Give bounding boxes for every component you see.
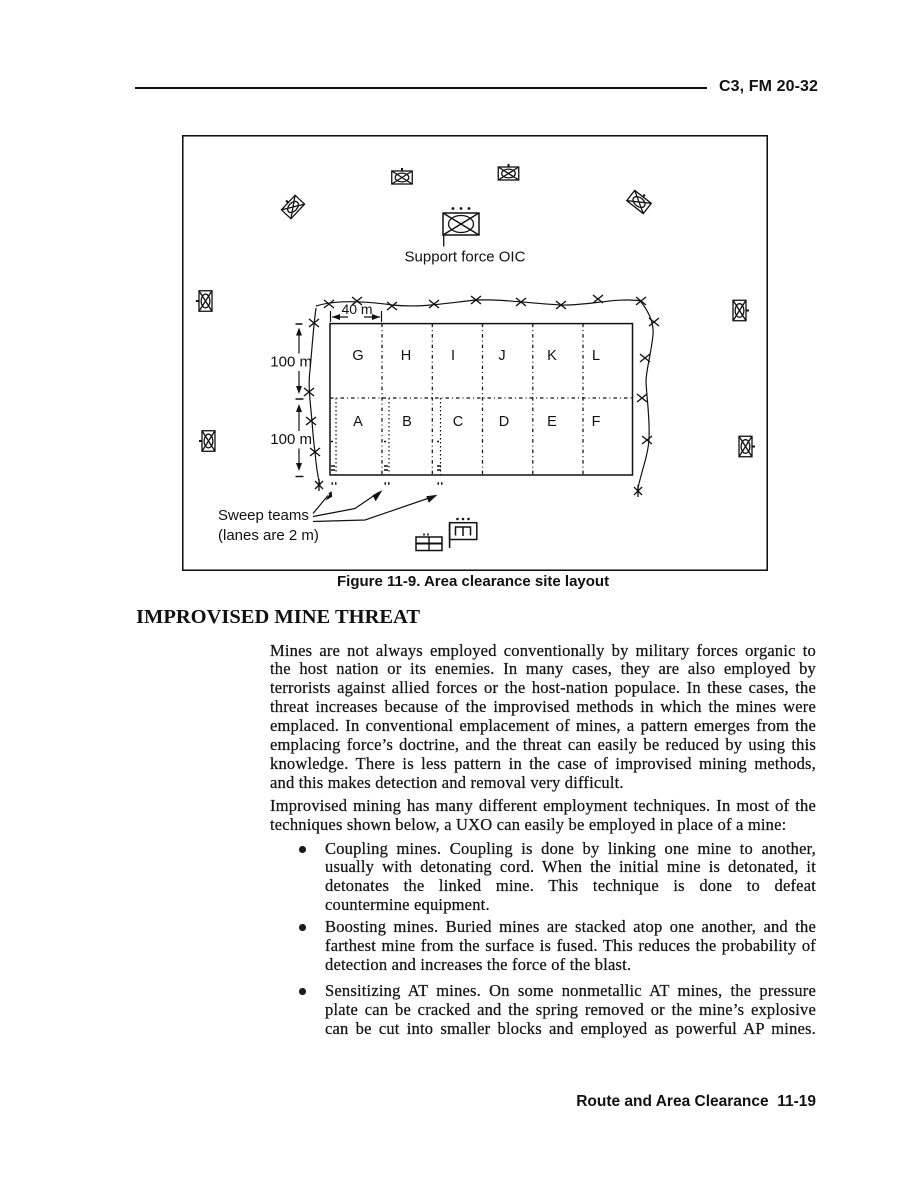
svg-text:Sweep teams: Sweep teams: [218, 507, 309, 524]
svg-text:F: F: [592, 414, 601, 430]
svg-text:I: I: [451, 348, 455, 364]
svg-text:L: L: [592, 348, 600, 364]
svg-text:D: D: [499, 414, 509, 430]
svg-text:E: E: [547, 414, 557, 430]
svg-text:(lanes are 2 m): (lanes are 2 m): [218, 527, 319, 544]
svg-text:100 m: 100 m: [270, 354, 312, 371]
svg-text:100 m: 100 m: [270, 431, 312, 448]
svg-text:G: G: [352, 348, 363, 364]
svg-text:K: K: [547, 348, 557, 364]
svg-text:C: C: [453, 414, 463, 430]
svg-text:H: H: [401, 348, 411, 364]
svg-text:Support force OIC: Support force OIC: [405, 249, 526, 266]
svg-text:B: B: [402, 414, 412, 430]
svg-text:A: A: [353, 414, 363, 430]
svg-text:40 m: 40 m: [341, 301, 372, 317]
svg-text:J: J: [498, 348, 505, 364]
